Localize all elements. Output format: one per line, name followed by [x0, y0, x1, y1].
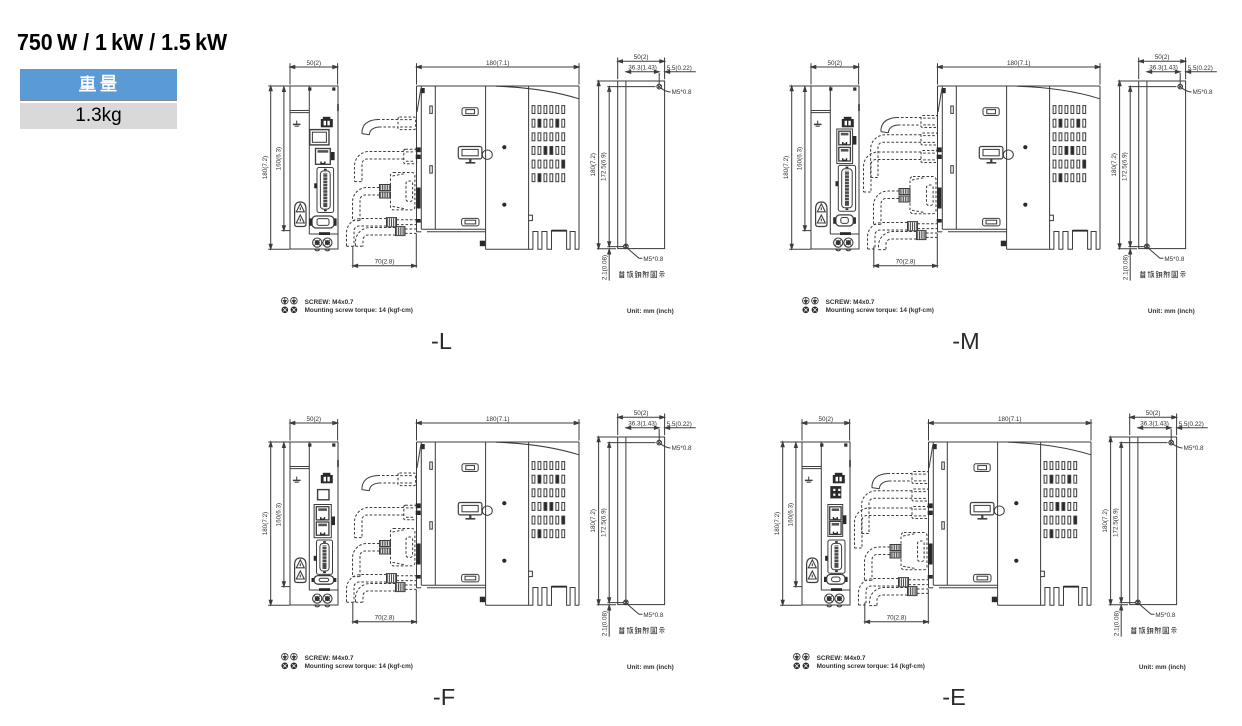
svg-text:172.5(6.9): 172.5(6.9) [1122, 152, 1129, 181]
svg-text:36.3(1.43): 36.3(1.43) [628, 65, 657, 72]
svg-text:36.3(1.43): 36.3(1.43) [1149, 65, 1178, 72]
svg-text:180(7.2): 180(7.2) [262, 512, 269, 535]
svg-text:-M: -M [952, 328, 979, 354]
svg-text:5.5(0.22): 5.5(0.22) [1179, 421, 1204, 428]
svg-text:Unit: mm (inch): Unit: mm (inch) [1139, 664, 1186, 671]
svg-text:M5*0.8: M5*0.8 [1164, 256, 1184, 263]
svg-text:5.5(0.22): 5.5(0.22) [667, 65, 692, 72]
svg-text:-F: -F [433, 684, 455, 710]
svg-text:5.5(0.22): 5.5(0.22) [667, 421, 692, 428]
svg-text:180(7.1): 180(7.1) [1007, 60, 1030, 67]
svg-text:160(6.3): 160(6.3) [796, 147, 803, 170]
svg-text:36.3(1.43): 36.3(1.43) [1140, 421, 1169, 428]
svg-text:50(2): 50(2) [818, 416, 833, 423]
svg-text:M5*0.8: M5*0.8 [1193, 89, 1213, 96]
svg-text:180(7.2): 180(7.2) [1102, 509, 1109, 532]
svg-text:172.5(6.9): 172.5(6.9) [1113, 508, 1120, 537]
svg-text:Unit: mm (inch): Unit: mm (inch) [1148, 308, 1195, 315]
svg-text:180(7.1): 180(7.1) [998, 416, 1021, 423]
svg-text:SCREW: M4x0.7: SCREW: M4x0.7 [305, 655, 354, 662]
svg-text:70(2.8): 70(2.8) [375, 259, 395, 266]
svg-text:SCREW: M4x0.7: SCREW: M4x0.7 [305, 299, 354, 306]
svg-text:50(2): 50(2) [634, 54, 649, 61]
svg-text:2.1(0.08): 2.1(0.08) [601, 611, 608, 636]
svg-text:Unit: mm (inch): Unit: mm (inch) [627, 308, 674, 315]
svg-text:172.5(6.9): 172.5(6.9) [601, 152, 608, 181]
svg-text:50(2): 50(2) [1146, 410, 1161, 417]
svg-text:180(7.2): 180(7.2) [590, 509, 597, 532]
svg-text:36.3(1.43): 36.3(1.43) [628, 421, 657, 428]
svg-text:2.1(0.08): 2.1(0.08) [601, 255, 608, 280]
svg-text:M5*0.8: M5*0.8 [672, 445, 692, 452]
svg-text:M5*0.8: M5*0.8 [643, 612, 663, 619]
svg-text:5.5(0.22): 5.5(0.22) [1188, 65, 1213, 72]
svg-text:-E: -E [942, 684, 966, 710]
svg-text:SCREW: M4x0.7: SCREW: M4x0.7 [826, 299, 875, 306]
svg-text:180(7.2): 180(7.2) [262, 156, 269, 179]
svg-text:180(7.2): 180(7.2) [774, 512, 781, 535]
svg-text:180(7.1): 180(7.1) [486, 416, 509, 423]
svg-text:180(7.2): 180(7.2) [590, 153, 597, 176]
svg-text:Mounting screw torque: 14 (kgf: Mounting screw torque: 14 (kgf-cm) [826, 307, 934, 314]
svg-text:50(2): 50(2) [306, 60, 321, 67]
svg-text:2.1(0.08): 2.1(0.08) [1113, 611, 1120, 636]
svg-text:2.1(0.08): 2.1(0.08) [1122, 255, 1129, 280]
svg-text:180(7.2): 180(7.2) [783, 156, 790, 179]
svg-text:SCREW: M4x0.7: SCREW: M4x0.7 [817, 655, 866, 662]
svg-text:50(2): 50(2) [634, 410, 649, 417]
svg-text:M5*0.8: M5*0.8 [1184, 445, 1204, 452]
svg-text:160(6.3): 160(6.3) [275, 503, 282, 526]
svg-text:Mounting screw torque: 14 (kgf: Mounting screw torque: 14 (kgf-cm) [305, 663, 413, 670]
svg-text:Unit: mm (inch): Unit: mm (inch) [627, 664, 674, 671]
svg-text:160(6.3): 160(6.3) [787, 503, 794, 526]
svg-text:M5*0.8: M5*0.8 [1155, 612, 1175, 619]
svg-text:M5*0.8: M5*0.8 [672, 89, 692, 96]
svg-text:50(2): 50(2) [1155, 54, 1170, 61]
svg-text:70(2.8): 70(2.8) [887, 615, 907, 622]
svg-text:50(2): 50(2) [827, 60, 842, 67]
svg-text:180(7.1): 180(7.1) [486, 60, 509, 67]
svg-text:70(2.8): 70(2.8) [896, 259, 916, 266]
svg-text:180(7.2): 180(7.2) [1111, 153, 1118, 176]
svg-text:Mounting screw torque: 14 (kgf: Mounting screw torque: 14 (kgf-cm) [817, 663, 925, 670]
svg-text:M5*0.8: M5*0.8 [643, 256, 663, 263]
svg-text:160(6.3): 160(6.3) [275, 147, 282, 170]
svg-text:172.5(6.9): 172.5(6.9) [601, 508, 608, 537]
svg-text:-L: -L [431, 328, 452, 354]
svg-text:50(2): 50(2) [306, 416, 321, 423]
svg-text:70(2.8): 70(2.8) [375, 615, 395, 622]
svg-text:Mounting screw torque: 14 (kgf: Mounting screw torque: 14 (kgf-cm) [305, 307, 413, 314]
